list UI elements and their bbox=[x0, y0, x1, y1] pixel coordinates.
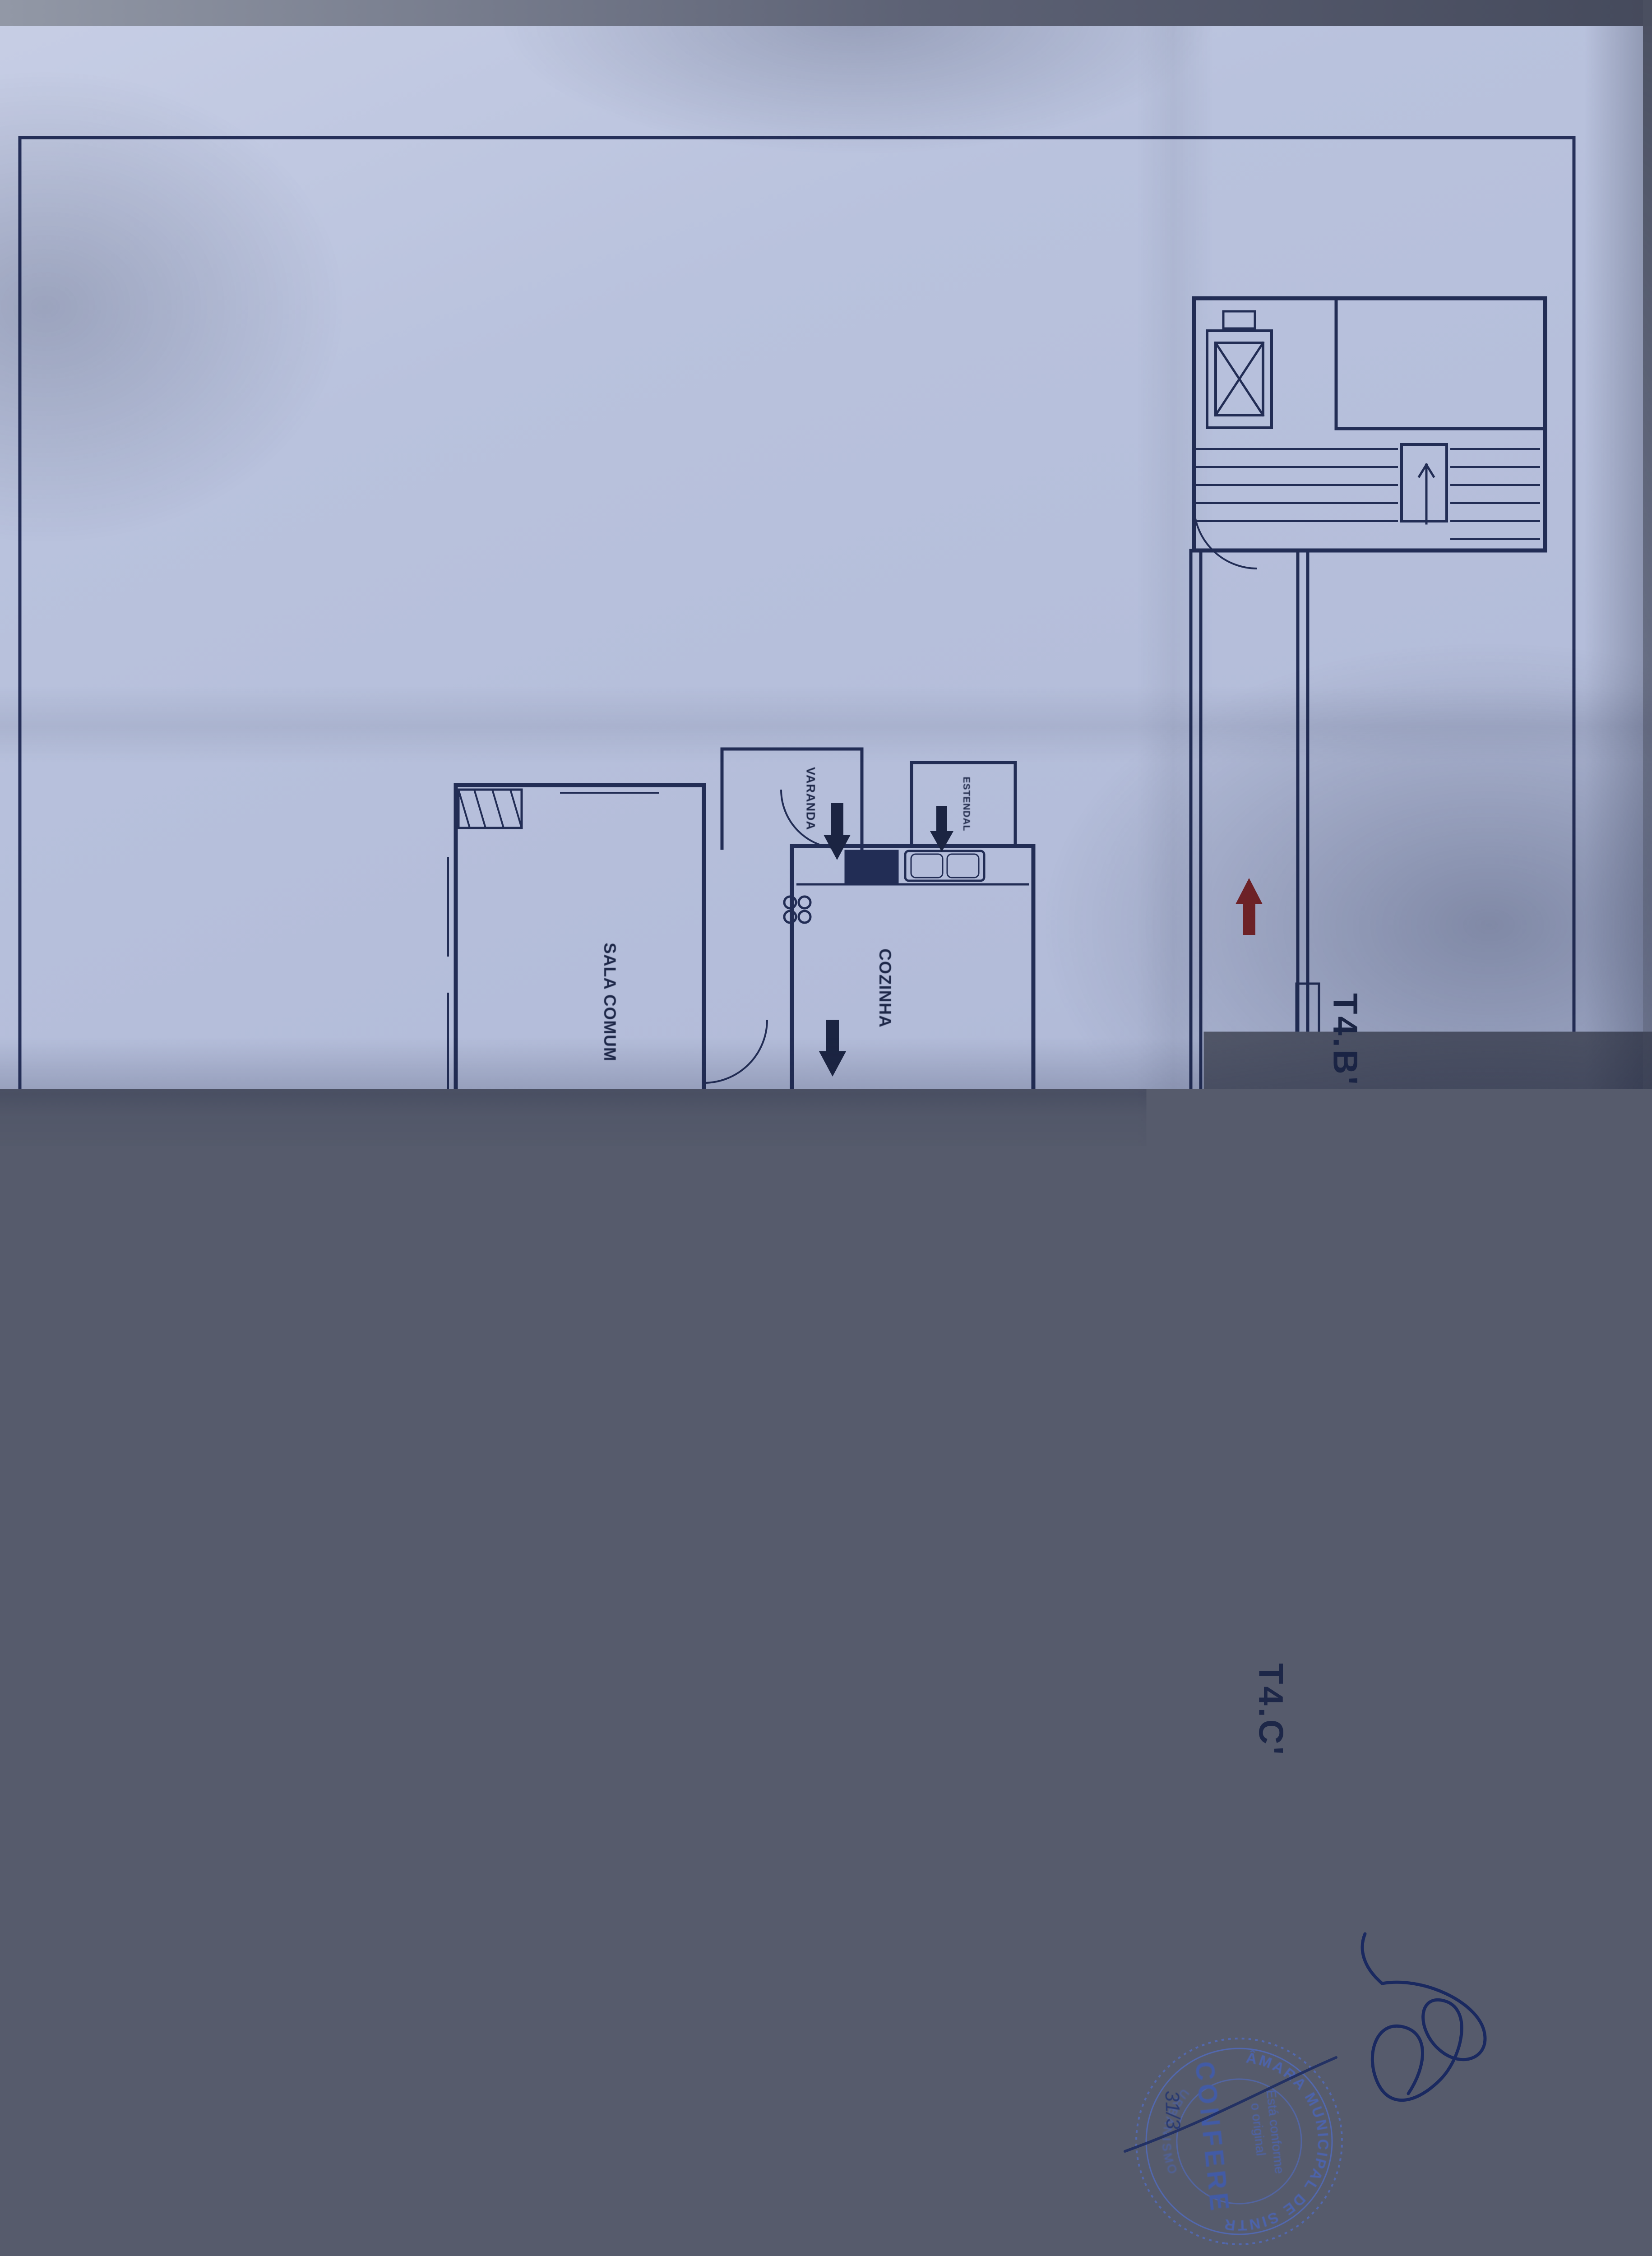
drawing-landscape-canvas: CÂMARA MUNICIPAL DE SINTRA URBANISMO CON… bbox=[0, 0, 1652, 2256]
black-escape-arrows bbox=[399, 803, 953, 1778]
arrow-corridor-red-icon bbox=[1236, 878, 1263, 935]
toilet-icon bbox=[699, 1177, 732, 1201]
scale-value: 1:100 bbox=[51, 2121, 70, 2256]
photo-background-right bbox=[1643, 0, 1652, 2256]
arrow-entry-red-icon bbox=[901, 1165, 958, 1192]
drawing-frame bbox=[20, 138, 1574, 2256]
local-label: LOCAL: bbox=[156, 1897, 169, 1940]
drawing-subtitle: Planta do piso 2 - Bloco 1 - T3 E bbox=[188, 1893, 205, 2256]
arrow-porch-icon bbox=[399, 1148, 454, 1175]
room-label-quarto: QUARTO bbox=[751, 1446, 770, 1521]
bidet-icon bbox=[816, 1276, 838, 1294]
room-label-varanda: VARANDA bbox=[804, 767, 818, 830]
room-label-quarto-suite-2: QUARTO SUITE bbox=[924, 1563, 943, 1695]
door-arcs bbox=[560, 505, 1257, 1489]
svg-text:CÂMARA MUNICIPAL DE SINTRA: CÂMARA MUNICIPAL DE SINTRA bbox=[1222, 14, 1652, 2256]
date-value: ABRIL 2008 bbox=[57, 1886, 76, 2121]
unit-label-t3e: T3.E bbox=[959, 1136, 1003, 1223]
washbasin-icon bbox=[676, 1248, 710, 1275]
redaction-patch bbox=[1033, 1543, 1155, 1710]
requerente-company-line2: (ilegível) bbox=[134, 1703, 145, 1884]
drawing-title: PLANTA SIMPLIFICADA DO ACESSO AO FOGO bbox=[211, 1893, 232, 2256]
washbasin-icon bbox=[615, 1248, 649, 1275]
toilet-icon bbox=[624, 1177, 656, 1201]
emergency-exit-caption: SAÍDA DE EMERGÊNCIA EM CASO DE INCÊNDIO bbox=[577, 1845, 595, 2234]
scanned-floor-plan-page: CÂMARA MUNICIPAL DE SINTRA URBANISMO CON… bbox=[0, 0, 1652, 2256]
washbasin-icon bbox=[798, 1299, 816, 1317]
red-route-arrows bbox=[901, 878, 1263, 1192]
room-label-estendal: ESTENDAL bbox=[961, 777, 972, 831]
stamp-confere-text: CONFERE bbox=[1189, 2060, 1235, 2215]
toilet-icon bbox=[844, 1275, 870, 1295]
stove-icon bbox=[846, 851, 898, 883]
room-label-quarto-suite-1: QUARTO SUITE bbox=[595, 1357, 614, 1489]
stamp-ring-text: CÂMARA MUNICIPAL DE SINTRA bbox=[1222, 14, 1652, 2256]
scale-label: ESCALA: bbox=[94, 2129, 107, 2177]
requerente-label: REQUERENTE bbox=[217, 1710, 231, 1808]
bidet-icon bbox=[594, 1179, 621, 1199]
stair-core bbox=[1194, 298, 1545, 550]
digitalizado-watermark: DIGITALIZADO bbox=[1533, 2043, 1563, 2256]
requerente-company-line1: (ilegível) bbox=[153, 1703, 163, 1884]
room-label-cozinha: COZINHA bbox=[875, 948, 894, 1028]
arrow-quarto-icon bbox=[704, 1336, 759, 1363]
bidet-icon bbox=[669, 1179, 696, 1199]
room-label-hall-entry: HALL bbox=[832, 1145, 846, 1179]
stamp-handwritten-date: 31/3 bbox=[1161, 2090, 1185, 2130]
unit-label-t4b: T4.B' bbox=[1326, 993, 1365, 1087]
window-marks bbox=[448, 785, 998, 1767]
arrow-emergency-icon bbox=[569, 1710, 604, 1778]
local-lote: Lote EA10 bbox=[134, 2211, 151, 2256]
stair-treads-icon bbox=[1197, 449, 1539, 539]
room-label-hall-night: HALL bbox=[788, 1336, 802, 1370]
plan-linework: CÂMARA MUNICIPAL DE SINTRA URBANISMO CON… bbox=[0, 0, 1652, 2256]
stamp-note-line1: Está conforme bbox=[1263, 2089, 1286, 2174]
stamp-note-line2: o original bbox=[1248, 2102, 1268, 2156]
arrow-hall-icon bbox=[679, 1430, 706, 1485]
arrow-kitchen-icon bbox=[819, 1020, 846, 1077]
photo-background-top bbox=[0, 0, 1652, 26]
room-label-sala-comum: SALA COMUM bbox=[600, 943, 619, 1062]
unit-label-t4c: T4.C' bbox=[1251, 1663, 1291, 1757]
bathtub-icon bbox=[674, 1283, 732, 1322]
kitchen-sink-icon bbox=[905, 851, 984, 881]
fixtures bbox=[594, 851, 1029, 1322]
